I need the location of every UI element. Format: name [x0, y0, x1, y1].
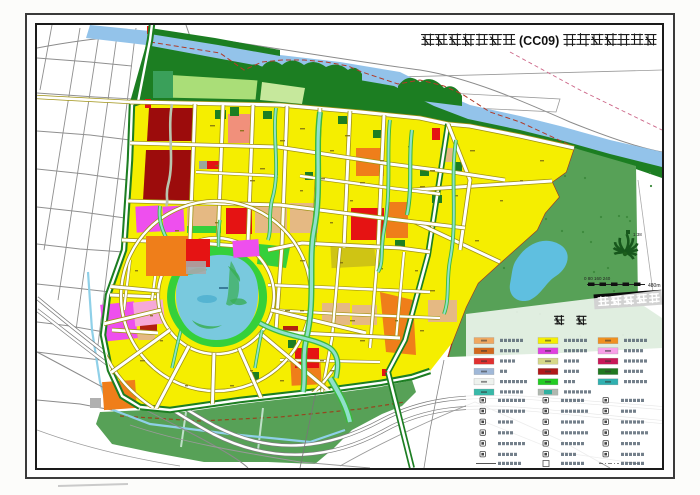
svg-text:0 80 160 240: 0 80 160 240	[584, 276, 611, 281]
svg-text:1:38: 1:38	[633, 232, 642, 237]
svg-text:480m: 480m	[648, 283, 661, 289]
svg-text:(CC09): (CC09)	[519, 34, 559, 48]
